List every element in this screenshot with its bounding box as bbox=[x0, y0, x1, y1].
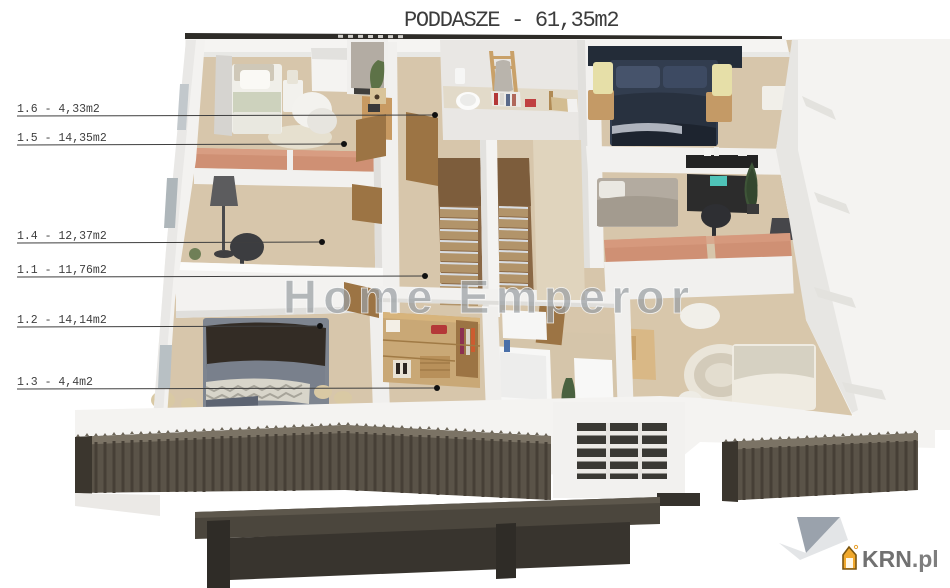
svg-text:1.5 - 14,35m2: 1.5 - 14,35m2 bbox=[17, 132, 107, 145]
svg-text:1.2 - 14,14m2: 1.2 - 14,14m2 bbox=[17, 314, 107, 327]
svg-text:PODDASZE - 61,35m2: PODDASZE - 61,35m2 bbox=[404, 8, 618, 33]
svg-text:Home Emperor: Home Emperor bbox=[283, 270, 696, 323]
svg-text:1.3 - 4,4m2: 1.3 - 4,4m2 bbox=[17, 376, 93, 389]
svg-text:1.1 - 11,76m2: 1.1 - 11,76m2 bbox=[17, 264, 107, 277]
svg-text:1.6 - 4,33m2: 1.6 - 4,33m2 bbox=[17, 103, 100, 116]
svg-text:KRN.pl: KRN.pl bbox=[862, 546, 939, 572]
svg-text:1.4 - 12,37m2: 1.4 - 12,37m2 bbox=[17, 230, 107, 243]
